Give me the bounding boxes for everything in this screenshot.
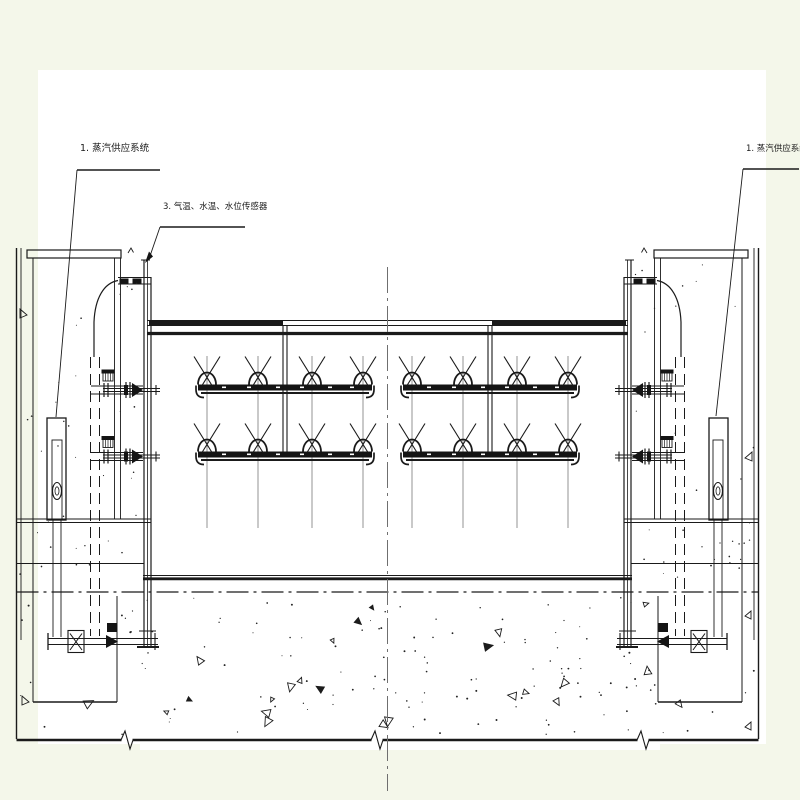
- label-steam-supply-right: 1. 蒸汽供应系统: [746, 143, 800, 154]
- label-sensors: 3. 气温、水温、水位传感器: [163, 201, 268, 212]
- engineering-drawing: 1. 蒸汽供应系统 3. 气温、水温、水位传感器 1. 蒸汽供应系统: [0, 0, 800, 800]
- label-steam-supply-left: 1. 蒸汽供应系统: [80, 142, 150, 154]
- paper-top: [60, 120, 760, 240]
